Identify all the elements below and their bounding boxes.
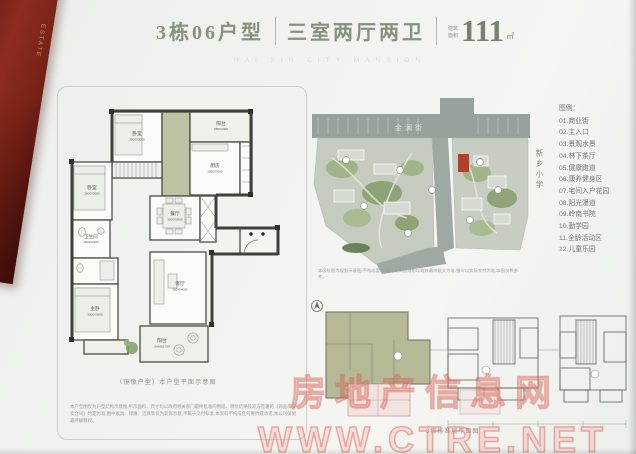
title-divider — [275, 17, 276, 45]
room-label: 餐厅 — [170, 210, 180, 217]
legend-items: 01.商业街02.主入口03.景观水景04.林下茶厅05.健康跑道06.康养健身… — [559, 116, 635, 256]
siteplan-note: 本区位图为规划示意图,不构成要约,项目及周边规划以政府最终批文为准,细节以实际交… — [318, 268, 518, 281]
unit-title: 3栋06户型 — [156, 16, 264, 45]
room-label: 厨房 — [210, 162, 220, 169]
area-unit: ㎡ — [506, 31, 514, 42]
legend-item: 01.商业街 — [559, 116, 635, 128]
plate-right-tower — [560, 316, 626, 402]
room-dims: 1950X3600 — [207, 170, 223, 174]
room-main-balcony — [140, 326, 208, 362]
room-label: 客厅 — [175, 280, 185, 287]
area-block: 建筑面积 111 ㎡ — [448, 17, 514, 45]
spine-subtitle: ESTATE — [34, 23, 45, 58]
road-label: 金澜街 — [395, 123, 425, 132]
legend-item: 02.主入口 — [559, 127, 635, 139]
floorplate-drawing — [308, 290, 630, 442]
title-divider — [436, 17, 437, 45]
compass-marker — [312, 301, 323, 312]
area-value: 111 — [461, 17, 504, 45]
entry-lobby — [240, 228, 278, 254]
legend-item: 05.健康跑道 — [559, 163, 635, 175]
brochure-photo: 3栋06户型 三室两厅两卫 建筑面积 111 ㎡ HAI XIN CITY MA… — [0, 0, 636, 454]
siteplan-drawing: 金澜街 — [312, 98, 530, 278]
room-label: 卫生间 — [84, 233, 97, 240]
highlighted-building — [458, 154, 469, 172]
site-legend: 图例： 01.商业街02.主入口03.景观水景04.林下茶厅05.健康跑道06.… — [559, 103, 635, 256]
cabinet-column — [200, 196, 216, 242]
floorplan-disclaimer: 本户型图仅为户型结构示意图,所示面积、尺寸均以政府相关部门最终批准的图纸、测绘结… — [70, 404, 296, 424]
page-header: 3栋06户型 三室两厅两卫 建筑面积 111 ㎡ — [140, 16, 530, 45]
legend-item: 10.勤学园 — [559, 221, 635, 233]
legend-item: 06.康养健身区 — [559, 174, 635, 186]
room-dims: 2800X3050 — [129, 138, 145, 142]
room-label: 阳台 — [216, 120, 226, 127]
legend-item: 09.岭南书院 — [559, 209, 635, 221]
legend-item: 04.林下茶厅 — [559, 151, 635, 163]
room-dims: 1500X2300 — [83, 240, 99, 244]
room-label: 卧室 — [132, 130, 142, 137]
brand-watermark: HAI XIN CITY MANSION — [205, 57, 455, 64]
legend-item: 08.阳光漫道 — [559, 198, 635, 210]
room-label: 卧室 — [87, 184, 97, 191]
room-bathroom — [72, 220, 110, 258]
area-label: 建筑面积 — [448, 26, 459, 39]
room-label: 主卧 — [90, 305, 100, 312]
photo-edge-right — [628, 0, 636, 454]
room-small-balcony — [84, 340, 128, 354]
room-dims: 2600X3000 — [84, 192, 100, 196]
floorplan-caption: （镜像户型）本户型平面示意图 — [116, 377, 217, 386]
plate-mid-tower — [448, 318, 538, 414]
school-label: 新乡小学 — [534, 149, 545, 191]
room-dims: 3300X3600 — [87, 313, 103, 317]
room-dims: 6640X1700 — [154, 345, 170, 349]
room-dims: 3900X4050 — [172, 288, 188, 292]
layout-title: 三室两厅两卫 — [287, 16, 425, 45]
room-dims: 3000X3900 — [167, 218, 183, 222]
room-label: 阳台 — [157, 337, 167, 344]
legend-item: 07.宅间入户花园 — [559, 186, 635, 198]
legend-item: 12.儿童乐园 — [559, 244, 635, 256]
floorplate-caption: 3栋标准层平面图 — [426, 426, 479, 435]
photo-edge-bottom — [0, 448, 636, 454]
room-dims: 850X2400 — [214, 127, 228, 131]
legend-item: 03.景观水景 — [559, 139, 635, 151]
floorplan-drawing: 卧室 2800X3050 阳台 850X2400 厨房 1950X3600 卧室… — [62, 98, 298, 388]
hallway — [162, 112, 190, 196]
legend-item: 11.全龄活动区 — [559, 233, 635, 245]
legend-title: 图例： — [559, 103, 635, 115]
plate-left-unit — [326, 312, 430, 416]
wardrobe — [112, 162, 162, 178]
